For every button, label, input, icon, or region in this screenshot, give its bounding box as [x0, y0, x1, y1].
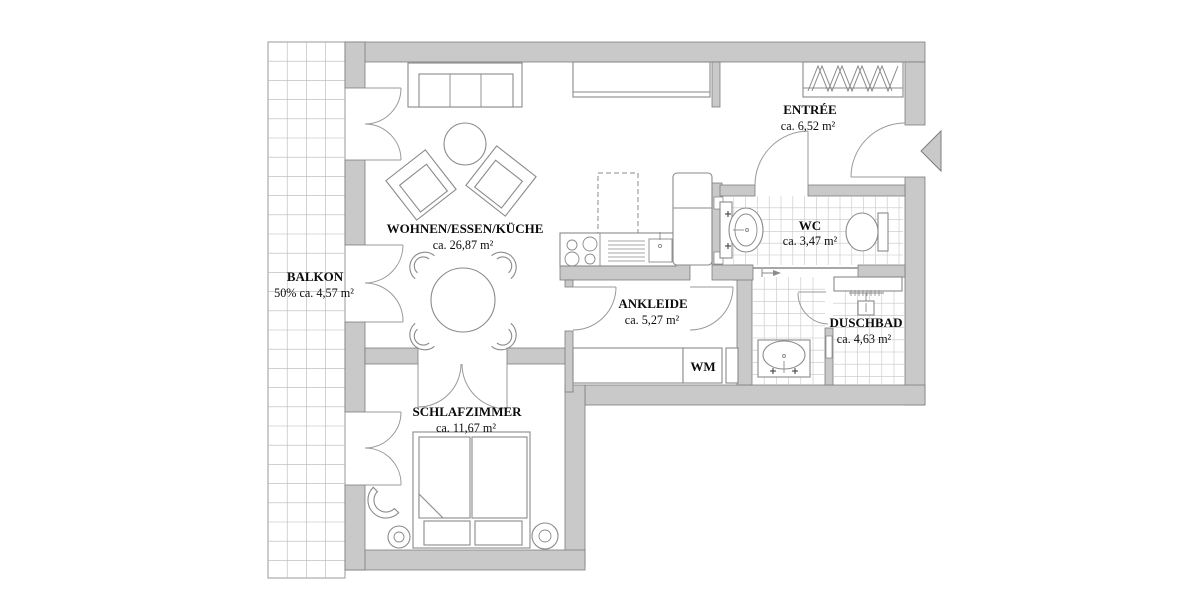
toilet-icon [846, 213, 888, 251]
ankleide-area: ca. 5,27 m² [625, 313, 680, 327]
ankleide-door-east[interactable] [690, 287, 733, 330]
shower-icon [849, 290, 884, 315]
wc-area: ca. 3,47 m² [783, 234, 838, 248]
balkon-area: 50% ca. 4,57 m² [274, 286, 354, 300]
floorplan-page: BALKON 50% ca. 4,57 m² WOHNEN/ESSEN/KÜCH… [0, 0, 1200, 600]
tall-cabinet-icon [673, 173, 712, 265]
wm-label: WM [690, 359, 715, 374]
kitchen-appliance-space [598, 173, 638, 233]
bedroom-double-door[interactable] [418, 364, 507, 409]
wohnen-label: WOHNEN/ESSEN/KÜCHE [387, 221, 544, 236]
entree-area: ca. 6,52 m² [781, 119, 836, 133]
duschbad-label: DUSCHBAD [830, 315, 903, 330]
entrance-door[interactable] [851, 123, 905, 177]
floorplan-drawing: BALKON 50% ca. 4,57 m² WOHNEN/ESSEN/KÜCH… [0, 0, 1200, 600]
wardrobe-icon [803, 62, 903, 97]
wc-door[interactable] [755, 131, 808, 185]
wohnen-area: ca. 26,87 m² [433, 238, 494, 252]
schlafzimmer-area: ca. 11,67 m² [436, 421, 496, 435]
wc-sink-icon [720, 202, 763, 258]
entree-sideboard-icon [573, 62, 710, 97]
bath-sink-icon [758, 340, 810, 377]
ankleide-door-west[interactable] [573, 287, 616, 330]
bath-sliding-door[interactable] [753, 268, 858, 277]
balcony-door-living-1[interactable] [365, 88, 401, 160]
shower-shelf [834, 277, 902, 291]
schlafzimmer-label: SCHLAFZIMMER [412, 404, 522, 419]
balcony [268, 42, 345, 578]
duschbad-area: ca. 4,63 m² [837, 332, 892, 346]
sofa-icon [408, 63, 522, 107]
entrance-arrow-icon [921, 131, 941, 171]
wc-label: WC [799, 218, 821, 233]
bed-icon [413, 432, 530, 548]
ankleide-label: ANKLEIDE [618, 296, 687, 311]
bedside-lamp-left-icon [388, 526, 410, 548]
balcony-door-bedroom[interactable] [365, 412, 401, 485]
balcony-door-living-2[interactable] [365, 245, 403, 322]
dining-table-icon [431, 268, 495, 332]
entree-label: ENTRÉE [783, 102, 836, 117]
kitchen-counter [560, 232, 676, 266]
bedside-lamp-right-icon [532, 523, 558, 549]
balkon-label: BALKON [287, 269, 344, 284]
bedroom-chair-icon [360, 487, 398, 525]
side-table-icon [444, 123, 486, 165]
